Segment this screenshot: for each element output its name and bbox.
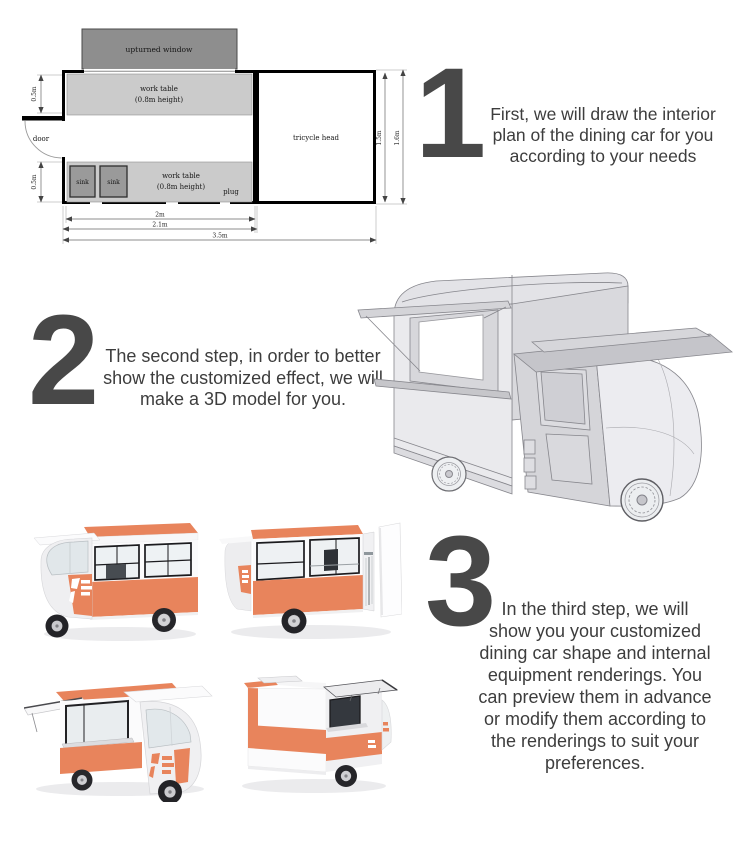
step-1-text-line: First, we will draw the interior xyxy=(458,104,748,125)
dim-bottom-inner: 2m xyxy=(155,212,165,219)
truck-c-left-wheel xyxy=(72,770,93,791)
floorplan-door: door xyxy=(22,116,63,158)
dim-right-outer: 1.6m xyxy=(394,130,401,146)
truck-a-rear-wheel xyxy=(152,608,176,632)
floorplan-upturned-window: upturned window xyxy=(82,29,237,69)
step-2-text: The second step, in order to better show… xyxy=(84,346,402,411)
step-3-text-line: equipment renderings. You xyxy=(460,664,730,686)
wireframe-cab xyxy=(514,328,732,506)
dim-right-inner: 1.5m xyxy=(376,130,383,146)
truck-d-cab-sliver xyxy=(382,700,391,750)
truck-shadow xyxy=(242,779,386,793)
dim-left-top: 0.5m xyxy=(31,86,38,102)
truck-b-box-body xyxy=(251,525,363,618)
step-2-text-line: make a 3D model for you. xyxy=(84,389,402,411)
truck-a-box-body xyxy=(84,523,198,620)
label-tricycle-head: tricycle head xyxy=(293,134,340,142)
render-truck-rear-open-door xyxy=(216,514,402,647)
step-3-text-line: the renderings to suit your xyxy=(460,730,730,752)
truck-a-cab xyxy=(34,533,100,619)
label-plug: plug xyxy=(223,188,239,196)
render-truck-awnings-front xyxy=(24,666,216,802)
step-3-text: In the third step, we will show you your… xyxy=(460,598,730,774)
render-truck-awnings-rear xyxy=(232,666,398,802)
truck-b-open-interior xyxy=(363,532,374,611)
label-upturned-window: upturned window xyxy=(126,45,193,54)
label-sink-left: sink xyxy=(76,179,89,186)
label-sink-right: sink xyxy=(107,179,120,186)
truck-a-front-wheel xyxy=(46,615,69,638)
step-1-text-line: plan of the dining car for you xyxy=(458,125,748,146)
page: upturned window work table (0.8m height)… xyxy=(0,0,750,858)
dim-bottom-middle: 2.1m xyxy=(152,222,168,229)
step-3-text-line: show you your customized xyxy=(460,620,730,642)
floor-plan-diagram: upturned window work table (0.8m height)… xyxy=(18,20,418,266)
step-3-text-line: or modify them according to xyxy=(460,708,730,730)
step-3-text-line: can preview them in advance xyxy=(460,686,730,708)
truck-b-wheel xyxy=(282,609,307,634)
step-3-text-line: dining car shape and internal xyxy=(460,642,730,664)
dim-bottom-outer: 3.5m xyxy=(212,233,228,240)
wireframe-front-wheel xyxy=(621,479,663,521)
step-1-text: First, we will draw the interior plan of… xyxy=(458,104,748,167)
step-3-text-line: preferences. xyxy=(460,752,730,774)
dim-left-bottom: 0.5m xyxy=(31,174,38,190)
label-work-table-top-2: (0.8m height) xyxy=(135,96,183,104)
label-work-table-top-1: work table xyxy=(140,85,178,93)
label-work-table-bottom-1: work table xyxy=(162,172,200,180)
wireframe-3d-model xyxy=(356,258,750,522)
step-2-text-line: show the customized effect, we will xyxy=(84,368,402,390)
label-door: door xyxy=(33,135,50,143)
label-work-table-bottom-2: (0.8m height) xyxy=(157,183,205,191)
render-truck-front-left xyxy=(28,515,208,648)
truck-d-wheel xyxy=(335,765,357,787)
truck-b-open-door xyxy=(379,523,402,617)
floorplan-work-table-top: work table (0.8m height) xyxy=(67,74,252,115)
truck-b-cab xyxy=(219,536,256,611)
step-1-text-line: according to your needs xyxy=(458,146,748,167)
wireframe-rear-wheel xyxy=(432,457,466,491)
truck-shadow xyxy=(231,625,391,639)
step-3-text-line: In the third step, we will xyxy=(460,598,730,620)
step-2-text-line: The second step, in order to better xyxy=(84,346,402,368)
